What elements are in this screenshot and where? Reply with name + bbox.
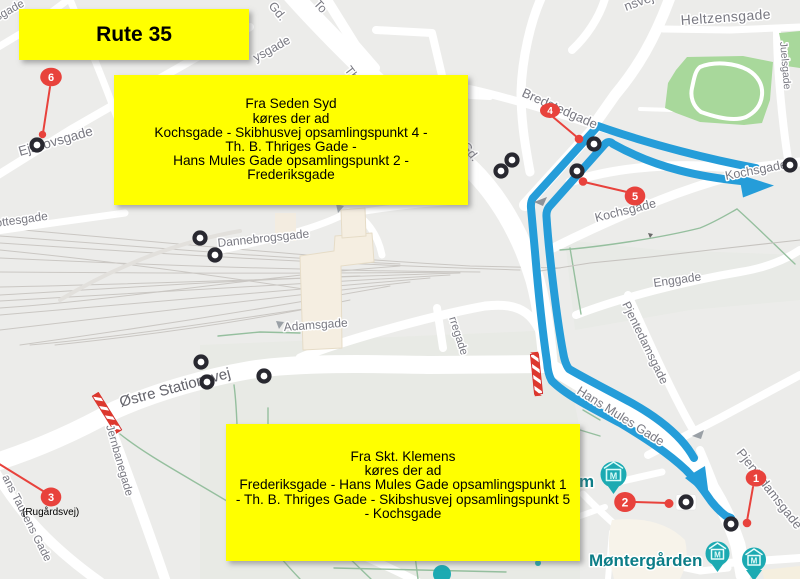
- svg-text:5: 5: [632, 191, 638, 203]
- svg-text:Ejskovsgade: Ejskovsgade: [17, 123, 95, 159]
- svg-text:4: 4: [547, 106, 553, 117]
- svg-text:m: m: [579, 472, 594, 491]
- svg-text:Pjentedamsgade: Pjentedamsgade: [734, 446, 800, 532]
- svg-text:ans Tausens Gade: ans Tausens Gade: [0, 473, 53, 564]
- svg-text:Gd.: Gd.: [266, 0, 290, 24]
- svg-text:ysgade: ysgade: [251, 33, 293, 65]
- svg-text:1: 1: [753, 473, 759, 485]
- svg-text:Kochsgade: Kochsgade: [593, 196, 657, 225]
- svg-text:M: M: [610, 471, 618, 481]
- svg-text:Jernbanegade: Jernbanegade: [103, 424, 135, 498]
- svg-text:Møntergården: Møntergården: [589, 551, 702, 570]
- svg-text:(Rugårdsvej): (Rugårdsvej): [22, 506, 79, 518]
- svg-text:Heltzensgade: Heltzensgade: [680, 6, 771, 28]
- svg-text:Dannebrogsgade: Dannebrogsgade: [217, 226, 310, 250]
- svg-text:M: M: [714, 551, 721, 560]
- svg-text:6: 6: [48, 72, 54, 84]
- svg-text:3: 3: [48, 492, 54, 504]
- svg-text:nsvej: nsvej: [622, 0, 656, 14]
- svg-text:2: 2: [622, 496, 629, 510]
- svg-text:M: M: [751, 557, 758, 566]
